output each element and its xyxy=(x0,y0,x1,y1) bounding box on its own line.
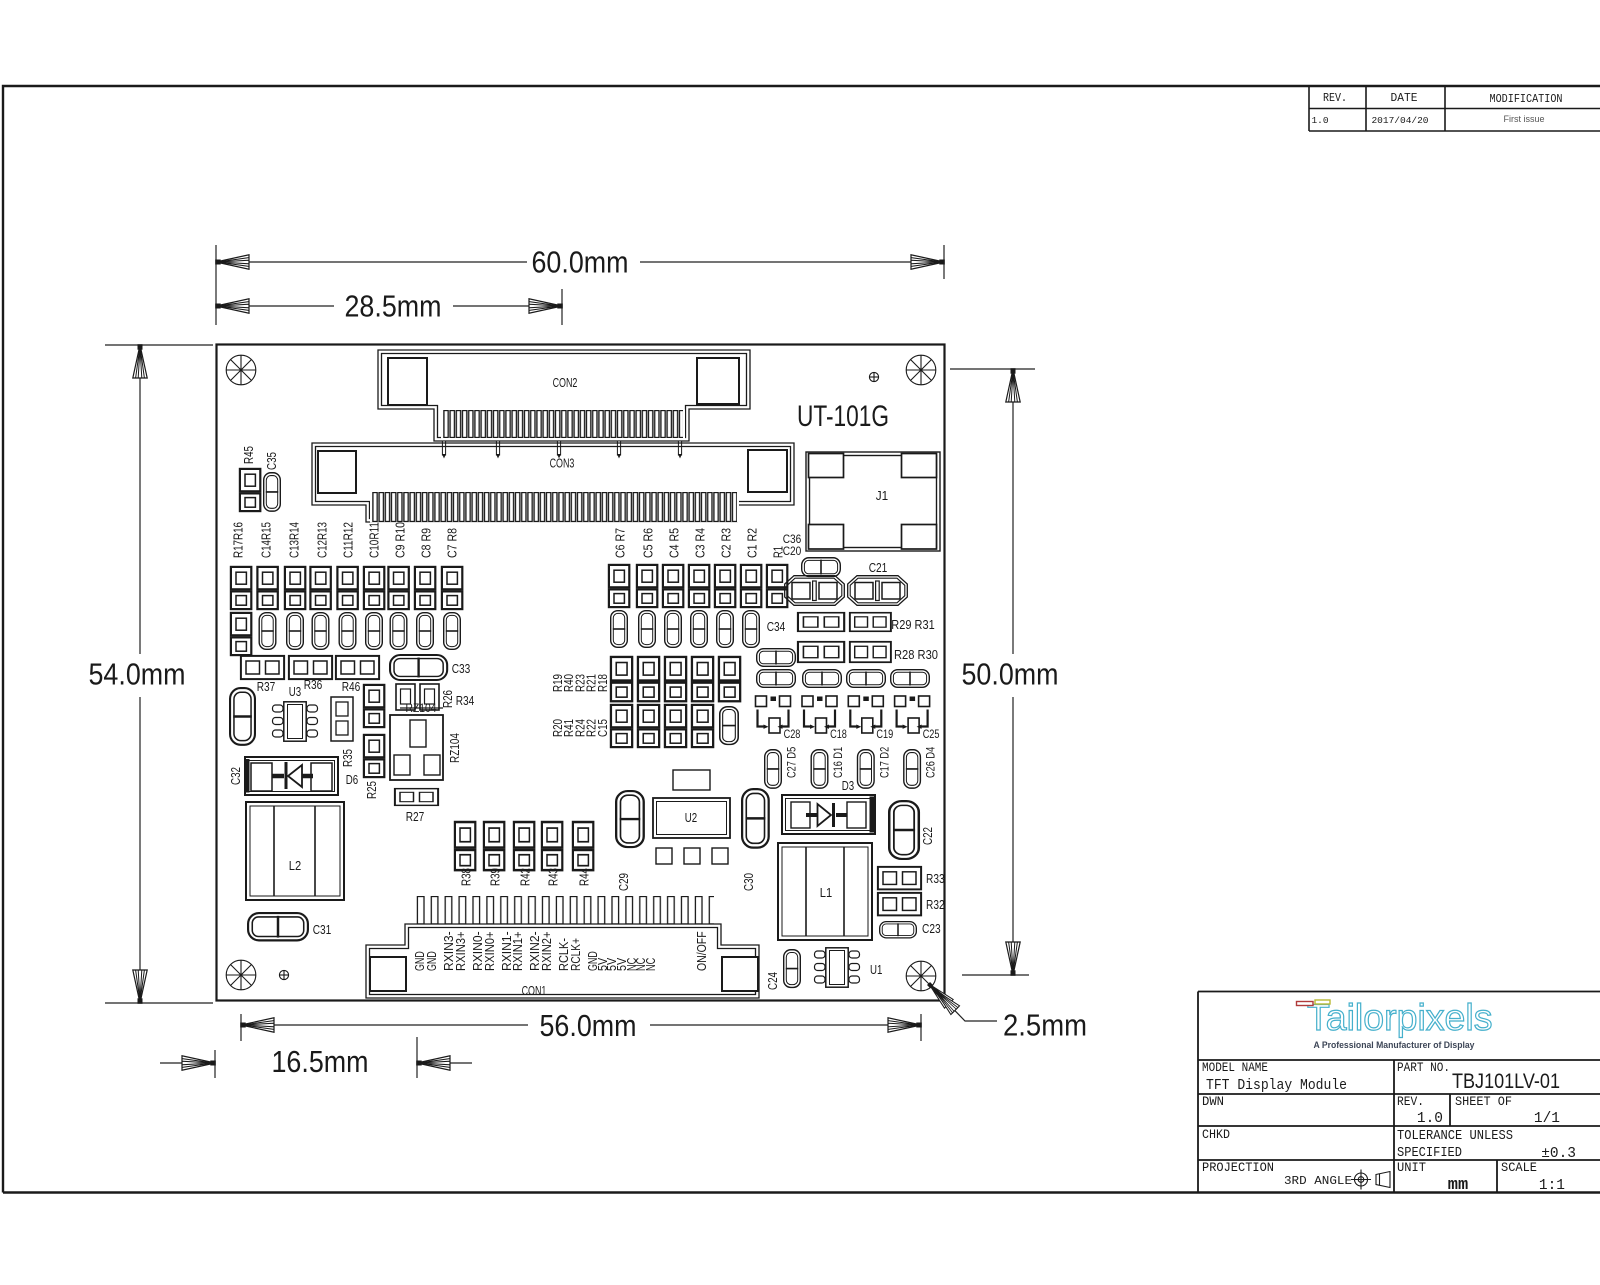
svg-text:C16 D1: C16 D1 xyxy=(831,747,845,778)
svg-text:C14R15: C14R15 xyxy=(259,522,274,558)
svg-text:Tailorpixels: Tailorpixels xyxy=(1307,996,1493,1038)
svg-text:60.0mm: 60.0mm xyxy=(532,245,629,280)
svg-text:R44: R44 xyxy=(577,868,592,886)
svg-text:R29 R31: R29 R31 xyxy=(891,617,934,632)
svg-text:MODIFICATION: MODIFICATION xyxy=(1490,92,1563,106)
svg-text:1:1: 1:1 xyxy=(1539,1178,1565,1194)
svg-text:R18: R18 xyxy=(595,674,610,692)
svg-text:R46: R46 xyxy=(342,679,361,694)
svg-text:R37: R37 xyxy=(257,679,276,694)
svg-text:L2: L2 xyxy=(289,858,301,873)
svg-text:NC: NC xyxy=(643,958,658,971)
svg-text:2017/04/20: 2017/04/20 xyxy=(1371,115,1428,126)
svg-text:CHKD: CHKD xyxy=(1202,1127,1230,1142)
svg-text:R25: R25 xyxy=(364,781,379,799)
svg-text:C10R11: C10R11 xyxy=(367,522,382,558)
svg-text:RCLK+: RCLK+ xyxy=(568,938,583,971)
svg-text:C6 R7: C6 R7 xyxy=(613,528,628,558)
svg-text:D3: D3 xyxy=(842,778,854,793)
svg-text:C1 R2: C1 R2 xyxy=(745,528,760,558)
svg-text:R38: R38 xyxy=(459,868,474,886)
svg-text:REV.: REV. xyxy=(1323,91,1347,105)
svg-text:50.0mm: 50.0mm xyxy=(962,657,1059,692)
svg-text:TOLERANCE UNLESS: TOLERANCE UNLESS xyxy=(1397,1128,1513,1144)
svg-text:PART NO.: PART NO. xyxy=(1397,1060,1450,1075)
svg-text:First issue: First issue xyxy=(1503,114,1544,124)
svg-text:C20: C20 xyxy=(783,544,802,558)
svg-text:C5 R6: C5 R6 xyxy=(641,528,656,558)
svg-text:R17R16: R17R16 xyxy=(231,522,246,558)
svg-text:REV.: REV. xyxy=(1397,1094,1424,1109)
svg-text:C11R12: C11R12 xyxy=(341,522,356,558)
svg-text:C17 D2: C17 D2 xyxy=(877,747,891,778)
svg-text:TBJ101LV-01: TBJ101LV-01 xyxy=(1452,1070,1560,1093)
svg-text:MODEL NAME: MODEL NAME xyxy=(1202,1060,1268,1075)
svg-text:mm: mm xyxy=(1448,1176,1468,1195)
svg-text:U3: U3 xyxy=(289,684,301,699)
svg-text:DATE: DATE xyxy=(1391,91,1418,105)
svg-text:J1: J1 xyxy=(876,488,888,503)
svg-text:GND: GND xyxy=(424,951,439,971)
svg-text:C19: C19 xyxy=(876,727,893,741)
svg-text:UT-101G: UT-101G xyxy=(797,400,889,433)
svg-text:28.5mm: 28.5mm xyxy=(345,289,442,324)
svg-text:C15: C15 xyxy=(595,719,610,737)
svg-text:1/1: 1/1 xyxy=(1534,1111,1560,1127)
svg-text:SPECIFIED: SPECIFIED xyxy=(1397,1145,1462,1161)
svg-text:C33: C33 xyxy=(452,661,471,676)
svg-text:C34: C34 xyxy=(767,619,786,634)
svg-text:C27 D5: C27 D5 xyxy=(785,747,799,778)
svg-text:U2: U2 xyxy=(685,810,697,825)
svg-text:U1: U1 xyxy=(870,962,882,977)
svg-text:C8 R9: C8 R9 xyxy=(419,528,434,558)
svg-text:D6: D6 xyxy=(346,772,358,787)
svg-text:R32: R32 xyxy=(926,897,945,912)
svg-text:R36: R36 xyxy=(304,677,323,692)
svg-text:SHEET OF: SHEET OF xyxy=(1455,1094,1512,1109)
svg-text:C21: C21 xyxy=(869,560,888,575)
svg-text:TFT Display Module: TFT Display Module xyxy=(1206,1078,1347,1094)
svg-text:RXIN0+: RXIN0+ xyxy=(482,931,497,971)
svg-text:ON/OFF: ON/OFF xyxy=(694,931,709,971)
svg-text:C30: C30 xyxy=(741,873,756,891)
svg-text:C28: C28 xyxy=(784,727,801,741)
svg-text:CON3: CON3 xyxy=(550,456,575,471)
svg-text:C31: C31 xyxy=(313,922,332,937)
svg-text:R34: R34 xyxy=(456,693,475,708)
svg-text:C18: C18 xyxy=(830,727,847,741)
svg-text:C9 R10: C9 R10 xyxy=(393,522,408,558)
svg-text:C23: C23 xyxy=(922,921,941,936)
svg-text:C3 R4: C3 R4 xyxy=(693,528,708,558)
svg-text:L1: L1 xyxy=(820,885,832,900)
svg-text:CON2: CON2 xyxy=(553,375,578,390)
svg-text:R27: R27 xyxy=(406,809,425,824)
svg-text:DWN: DWN xyxy=(1202,1094,1224,1109)
svg-text:C26 D4: C26 D4 xyxy=(924,747,938,778)
svg-text:C13R14: C13R14 xyxy=(287,522,302,558)
svg-text:C29: C29 xyxy=(616,873,631,891)
svg-text:C2 R3: C2 R3 xyxy=(719,528,734,558)
svg-text:2.5mm: 2.5mm xyxy=(1003,1008,1087,1043)
svg-text:C7 R8: C7 R8 xyxy=(445,528,460,558)
svg-text:C25: C25 xyxy=(923,727,940,741)
svg-text:UNIT: UNIT xyxy=(1397,1160,1426,1175)
svg-text:16.5mm: 16.5mm xyxy=(272,1044,369,1079)
svg-text:54.0mm: 54.0mm xyxy=(89,657,186,692)
svg-text:1.0: 1.0 xyxy=(1417,1111,1443,1127)
svg-text:C32: C32 xyxy=(228,767,243,785)
svg-text:SCALE: SCALE xyxy=(1501,1160,1537,1175)
svg-text:R35: R35 xyxy=(340,749,355,767)
svg-text:C12R13: C12R13 xyxy=(315,522,330,558)
svg-text:C22: C22 xyxy=(920,827,935,845)
svg-text:R39: R39 xyxy=(488,868,503,886)
svg-text:R28 R30: R28 R30 xyxy=(894,647,938,662)
svg-text:RXIN2+: RXIN2+ xyxy=(539,931,554,971)
svg-text:3RD ANGLE: 3RD ANGLE xyxy=(1284,1174,1352,1188)
svg-text:C35: C35 xyxy=(264,452,279,470)
svg-text:RZ104: RZ104 xyxy=(447,733,462,763)
svg-text:CON1: CON1 xyxy=(522,983,547,998)
svg-text:RXIN1+: RXIN1+ xyxy=(510,931,525,971)
svg-text:56.0mm: 56.0mm xyxy=(540,1008,637,1043)
svg-text:R42: R42 xyxy=(518,868,533,886)
svg-text:R33: R33 xyxy=(926,871,945,886)
svg-text:C4 R5: C4 R5 xyxy=(667,528,682,558)
svg-text:1.0: 1.0 xyxy=(1311,115,1328,126)
svg-text:RXIN3+: RXIN3+ xyxy=(453,931,468,971)
svg-text:±0.3: ±0.3 xyxy=(1541,1146,1576,1162)
svg-text:A Professional Manufacturer of: A Professional Manufacturer of Display xyxy=(1314,1040,1475,1050)
svg-text:R26: R26 xyxy=(440,690,455,708)
svg-text:C24: C24 xyxy=(765,972,780,990)
svg-text:R43: R43 xyxy=(546,868,561,886)
svg-text:R45: R45 xyxy=(241,446,256,464)
svg-text:PROJECTION: PROJECTION xyxy=(1202,1160,1274,1175)
